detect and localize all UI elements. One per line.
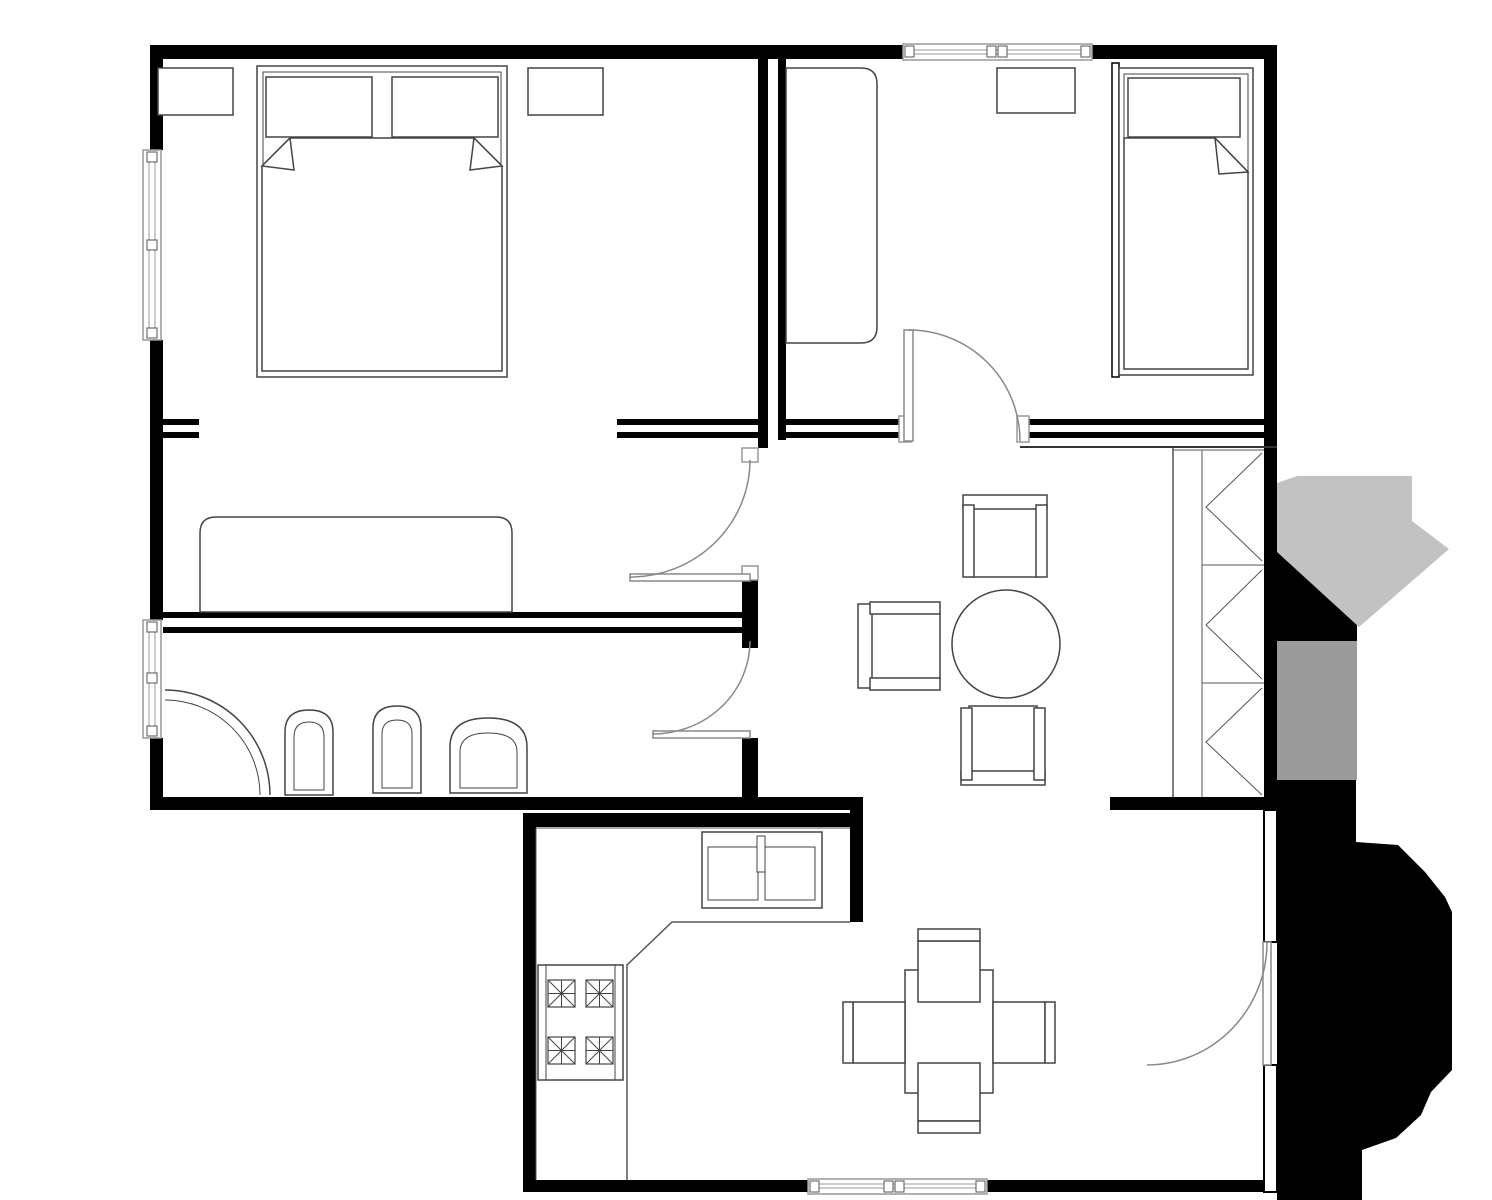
window-bath-mark-1 — [147, 622, 157, 632]
bed1-pillow-right — [392, 77, 498, 137]
wall-bedroom1-bottom-2 — [617, 432, 768, 438]
wall-bathroom-right — [742, 738, 758, 797]
wall-bottom-b — [987, 1180, 1283, 1192]
hall-round-table — [952, 590, 1060, 698]
wardrobe-door-2 — [1206, 570, 1262, 679]
wall-lower-left — [523, 813, 536, 1192]
wall-hall-top-2 — [1020, 432, 1277, 438]
dining-chair-top-back — [918, 929, 980, 941]
wardrobe-door-3 — [1206, 688, 1262, 795]
stove-burner-3 — [548, 1037, 575, 1064]
dining-chair-top-seat — [918, 941, 980, 1002]
shadow-black-lower — [1277, 780, 1452, 1200]
wall-bedroom1-right — [758, 59, 768, 448]
couchroom-dresser — [997, 68, 1075, 113]
wall-left-b — [150, 340, 163, 620]
toilet-1-inner — [294, 722, 324, 790]
armchair-left-back — [858, 604, 872, 688]
couchroom-couch — [786, 68, 877, 343]
wall-bedroom2-left — [1112, 63, 1119, 377]
toilet-2-inner — [382, 720, 412, 788]
door-couchroom-arc — [909, 330, 1020, 441]
wall-livingroom-bottom — [163, 612, 742, 618]
wall-bedroom1-stub-1 — [150, 419, 199, 425]
dining-chair-bottom-seat — [918, 1063, 980, 1121]
kitchen-counter-front — [627, 922, 850, 1180]
bathroom-sink-inner — [460, 733, 517, 788]
dining-chair-bottom-back — [918, 1121, 980, 1133]
furniture-layer — [158, 66, 1264, 1180]
armchair-top-seat — [971, 500, 1039, 577]
window-bottom-mark-2 — [884, 1181, 893, 1192]
shower-outer — [165, 690, 270, 795]
wall-bath-bottom — [150, 797, 863, 810]
wall-kitchen-top — [523, 813, 863, 827]
wall-top-right — [1092, 45, 1277, 59]
jamb-living-door-top — [742, 448, 758, 462]
armchair-bottom-back — [961, 771, 1045, 785]
window-bath-mark-3 — [147, 726, 157, 736]
wall-livingroom-right — [742, 580, 758, 648]
window-top-mark-1 — [905, 46, 914, 57]
window-top-mark-4 — [1081, 46, 1090, 57]
dining-chair-right-back — [1045, 1002, 1055, 1063]
bedroom1-nightstand-right — [528, 68, 603, 115]
door-couchroom-leaf — [904, 330, 913, 441]
window-bedroom1-mark-2 — [147, 240, 157, 250]
wall-bathroom-top — [163, 627, 742, 633]
window-bedroom1-mark-3 — [147, 328, 157, 338]
stove-burner-2 — [586, 980, 613, 1007]
shower-inner — [165, 700, 260, 795]
bedroom1-nightstand-left — [158, 68, 233, 115]
armchair-left-seat — [868, 612, 940, 680]
armchair-top-arm-l — [963, 505, 974, 577]
window-bottom-mark-1 — [810, 1181, 819, 1192]
armchair-top-arm-r — [1036, 505, 1047, 577]
dining-chair-right-seat — [993, 1002, 1045, 1063]
dining-chair-left-seat — [853, 1002, 905, 1063]
door-entry-leaf — [1263, 942, 1271, 1065]
wall-entry-lower — [1264, 1065, 1277, 1192]
kitchen-sink-faucet — [757, 836, 765, 872]
armchair-bottom-arm-l — [961, 708, 972, 780]
window-bath-mark-2 — [147, 673, 157, 683]
bed1-blanket — [262, 138, 502, 371]
door-living-arc — [630, 460, 750, 577]
door-entry-arc — [1147, 942, 1267, 1065]
armchair-left-arm-t — [870, 602, 940, 614]
window-top-mark-3 — [998, 46, 1007, 57]
window-bedroom1-mark-1 — [147, 152, 157, 162]
wall-hall-top-1 — [1020, 419, 1277, 425]
kitchen-sink-basin-right — [765, 847, 815, 900]
floor-plan — [0, 0, 1492, 1200]
wall-bedroom1-stub-2 — [150, 432, 199, 438]
wall-bottom-a — [523, 1180, 808, 1192]
bed2-pillow — [1128, 78, 1240, 137]
window-bottom-mark-4 — [976, 1181, 985, 1192]
stove-burner-1 — [548, 980, 575, 1007]
door-bath-arc — [653, 641, 750, 734]
wall-below-wardrobe — [1110, 797, 1277, 810]
bed1-pillow-left — [266, 77, 372, 137]
window-bottom-mark-3 — [895, 1181, 904, 1192]
livingroom-sofa — [200, 517, 512, 612]
armchair-left-arm-b — [870, 678, 940, 690]
door-bath-leaf — [653, 731, 750, 738]
kitchen-sink-basin-left — [708, 847, 758, 900]
armchair-bottom-arm-r — [1034, 708, 1045, 780]
wardrobe-door-1 — [1206, 453, 1262, 561]
dining-chair-left-back — [843, 1002, 853, 1063]
shadow-gray-rect — [1277, 641, 1357, 780]
wall-right-upper — [1264, 45, 1277, 810]
wall-kitchen-hall-stub — [850, 797, 863, 922]
wall-couchroom-bottom-1 — [778, 419, 908, 425]
stove-burner-4 — [586, 1037, 613, 1064]
window-top-mark-2 — [987, 46, 996, 57]
armchair-top-back — [963, 495, 1047, 509]
wall-top-left — [150, 45, 903, 59]
wall-entry-upper — [1264, 810, 1277, 942]
wall-bedroom1-bottom-1 — [617, 419, 768, 425]
floor-plan-canvas — [0, 0, 1492, 1200]
exterior-shadow-layer — [1277, 476, 1452, 1200]
wall-couchroom-left — [778, 59, 786, 440]
wall-couchroom-bottom-2 — [778, 432, 908, 438]
